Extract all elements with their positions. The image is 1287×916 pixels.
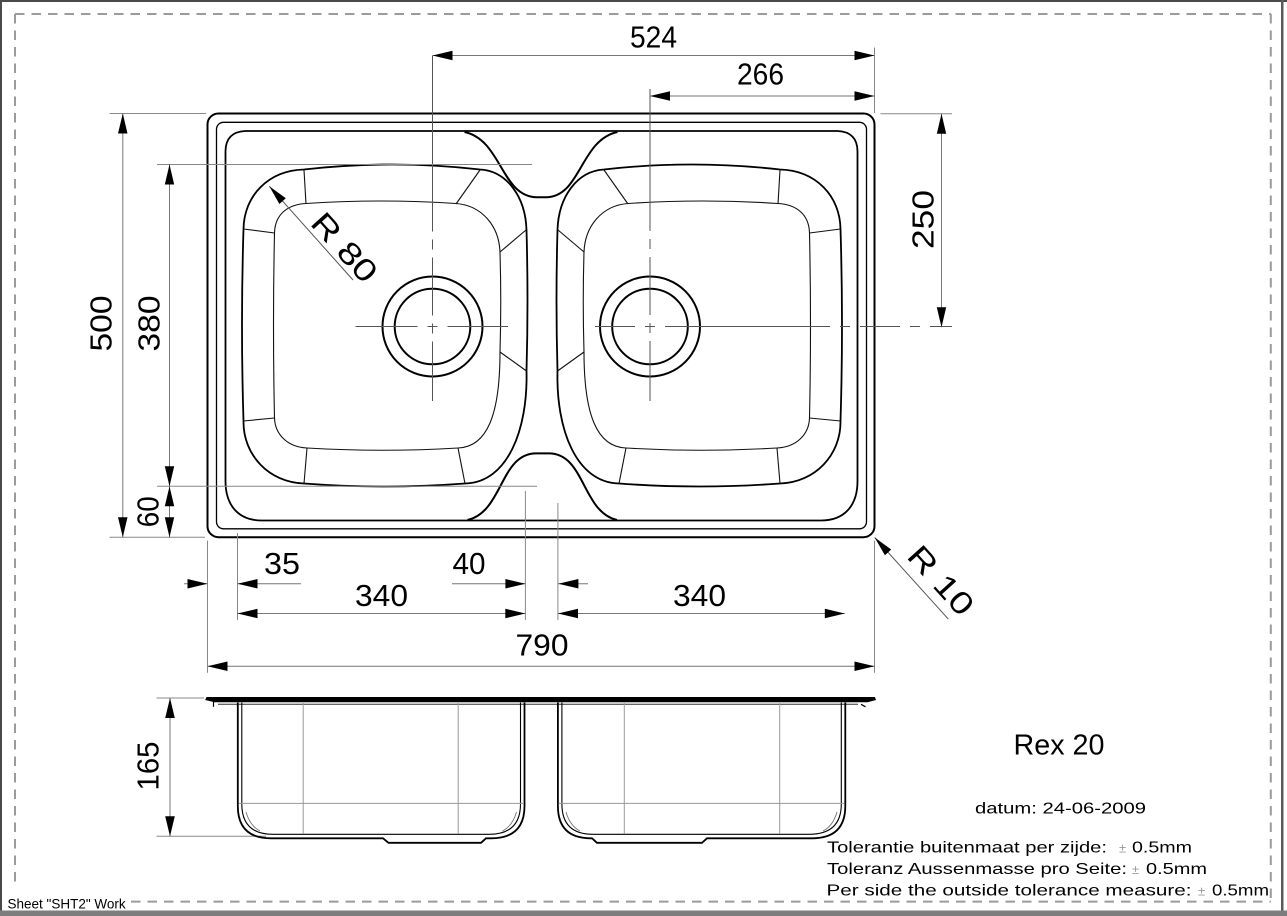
svg-text:Toleranz Aussenmasse pro Seite: Toleranz Aussenmasse pro Seite:: [827, 861, 1127, 878]
svg-text:Tolerantie buitenmaat per zijd: Tolerantie buitenmaat per zijde:: [827, 840, 1107, 857]
svg-text:790: 790: [516, 627, 569, 662]
svg-text:40: 40: [453, 546, 486, 581]
svg-text:Per side the outside tolerance: Per side the outside tolerance measure:: [827, 883, 1192, 900]
svg-text:266: 266: [737, 57, 784, 92]
svg-text:Rex 20: Rex 20: [1014, 730, 1105, 762]
svg-text:524: 524: [630, 20, 677, 55]
svg-text:165: 165: [131, 742, 166, 791]
svg-text:340: 340: [673, 578, 726, 613]
svg-text:±: ±: [1119, 841, 1126, 856]
svg-text:±: ±: [1132, 862, 1139, 877]
svg-text:380: 380: [132, 296, 167, 352]
svg-text:35: 35: [264, 546, 300, 581]
svg-text:0.5mm: 0.5mm: [1146, 861, 1207, 878]
svg-text:±: ±: [1198, 884, 1205, 899]
svg-text:340: 340: [355, 578, 408, 613]
svg-text:60: 60: [131, 496, 166, 527]
svg-text:250: 250: [906, 190, 941, 249]
svg-text:datum: 24-06-2009: datum: 24-06-2009: [975, 801, 1146, 818]
svg-text:0.5mm: 0.5mm: [1212, 883, 1269, 900]
svg-text:Sheet "SHT2" Work: Sheet "SHT2" Work: [8, 897, 126, 912]
svg-text:500: 500: [84, 296, 119, 352]
svg-text:0.5mm: 0.5mm: [1132, 840, 1192, 857]
